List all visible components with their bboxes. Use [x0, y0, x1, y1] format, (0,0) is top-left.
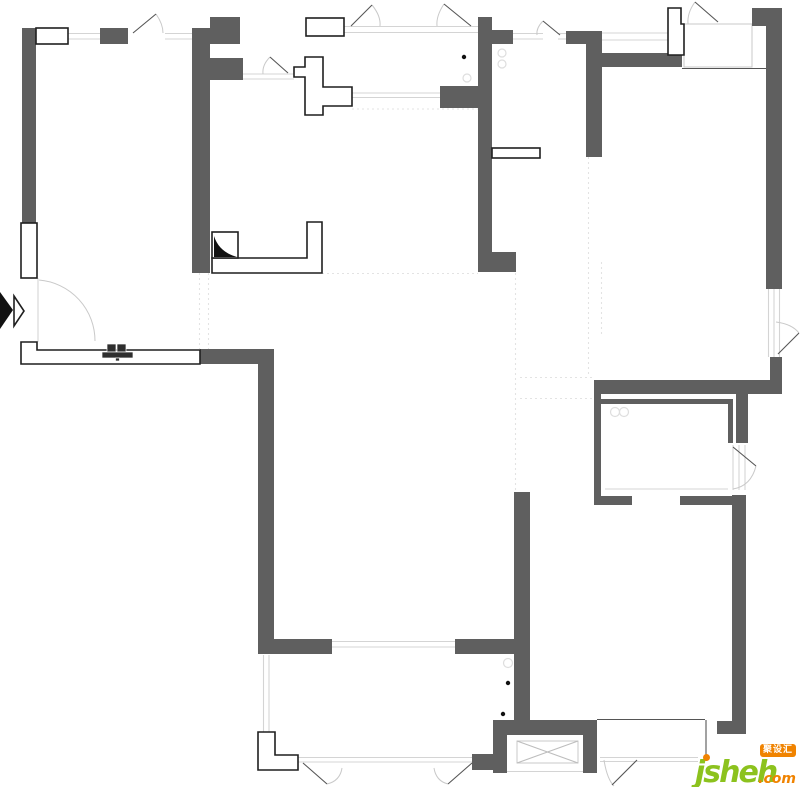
- entry-fixture: [117, 344, 126, 352]
- marker-dot: [462, 55, 466, 59]
- fitting-circle: [620, 408, 629, 417]
- fitting-circle: [463, 74, 471, 82]
- floor-plan-canvas: [0, 0, 800, 787]
- wall-segment: [100, 28, 128, 44]
- door-leaf-line: [612, 760, 637, 785]
- fitting-circle: [504, 659, 513, 668]
- door-leaf-line: [778, 333, 799, 354]
- wall-segment: [478, 17, 492, 272]
- entry-chevron: [14, 296, 24, 326]
- wall-segment: [493, 735, 507, 773]
- door-swing-arc: [537, 21, 543, 35]
- wall-segment: [594, 380, 601, 505]
- wall-segment: [493, 720, 597, 735]
- wall-segment: [770, 357, 782, 382]
- marker-dot: [506, 681, 510, 685]
- door-swing-arc: [434, 768, 448, 784]
- wall-segment: [600, 399, 733, 404]
- door-swing-arc: [372, 5, 380, 26]
- wall-segment: [472, 754, 493, 770]
- wall-segment: [192, 28, 210, 273]
- wall-segment: [680, 496, 733, 505]
- door-leaf-line: [133, 14, 156, 33]
- wall-segment: [200, 349, 274, 364]
- wall-segment: [586, 31, 602, 157]
- wall-segment: [736, 394, 748, 443]
- window-box: [36, 28, 68, 44]
- kitchen-counter-bar: [492, 148, 540, 158]
- entry-arrow: [0, 292, 13, 329]
- wall-segment: [594, 496, 632, 505]
- door-swing-arc: [688, 2, 695, 24]
- floor-plan-page: jsheh 聚设汇 .com: [0, 0, 800, 787]
- wall-segment: [258, 362, 274, 654]
- marker-dot: [501, 712, 505, 716]
- wall-segment: [492, 30, 513, 44]
- fitting-circle: [498, 49, 506, 57]
- window-box: [21, 223, 37, 278]
- entry-fixture: [107, 344, 116, 352]
- door-leaf-line: [351, 5, 372, 26]
- fitting-circle: [611, 408, 620, 417]
- wall-segment: [22, 28, 36, 223]
- wall-segment: [766, 8, 782, 289]
- door-leaf-line: [448, 763, 472, 784]
- door-leaf-line: [303, 763, 327, 784]
- wall-segment: [210, 58, 243, 80]
- wall-segment: [583, 735, 597, 773]
- wall-segment: [455, 639, 514, 654]
- wall-segment: [732, 495, 746, 734]
- door-swing-arc: [604, 760, 614, 786]
- wall-segment: [594, 380, 782, 394]
- entry-fixture: [102, 352, 133, 358]
- wall-segment: [274, 639, 332, 654]
- door-leaf-line: [695, 2, 718, 22]
- door-leaf-line: [270, 57, 288, 73]
- window-box: [306, 18, 344, 36]
- corner-notch: [668, 8, 684, 55]
- wall-segment: [210, 17, 240, 44]
- door-swing-arc: [39, 280, 95, 341]
- flue-duct: [294, 57, 352, 115]
- entry-fixture: [116, 358, 120, 361]
- door-swing-arc: [156, 14, 163, 33]
- door-leaf-line: [444, 4, 471, 26]
- door-swing-arc: [437, 4, 444, 26]
- door-leaf-line: [543, 21, 560, 35]
- door-swing-arc: [327, 768, 342, 784]
- door-swing-arc: [263, 57, 270, 74]
- balcony-step: [258, 732, 298, 770]
- wall-segment: [514, 492, 530, 720]
- wall-segment: [717, 721, 732, 734]
- wall-segment: [728, 399, 733, 443]
- wall-segment: [478, 252, 516, 272]
- wall-segment: [440, 86, 478, 108]
- fitting-circle: [498, 60, 506, 68]
- bay-window: [684, 24, 752, 67]
